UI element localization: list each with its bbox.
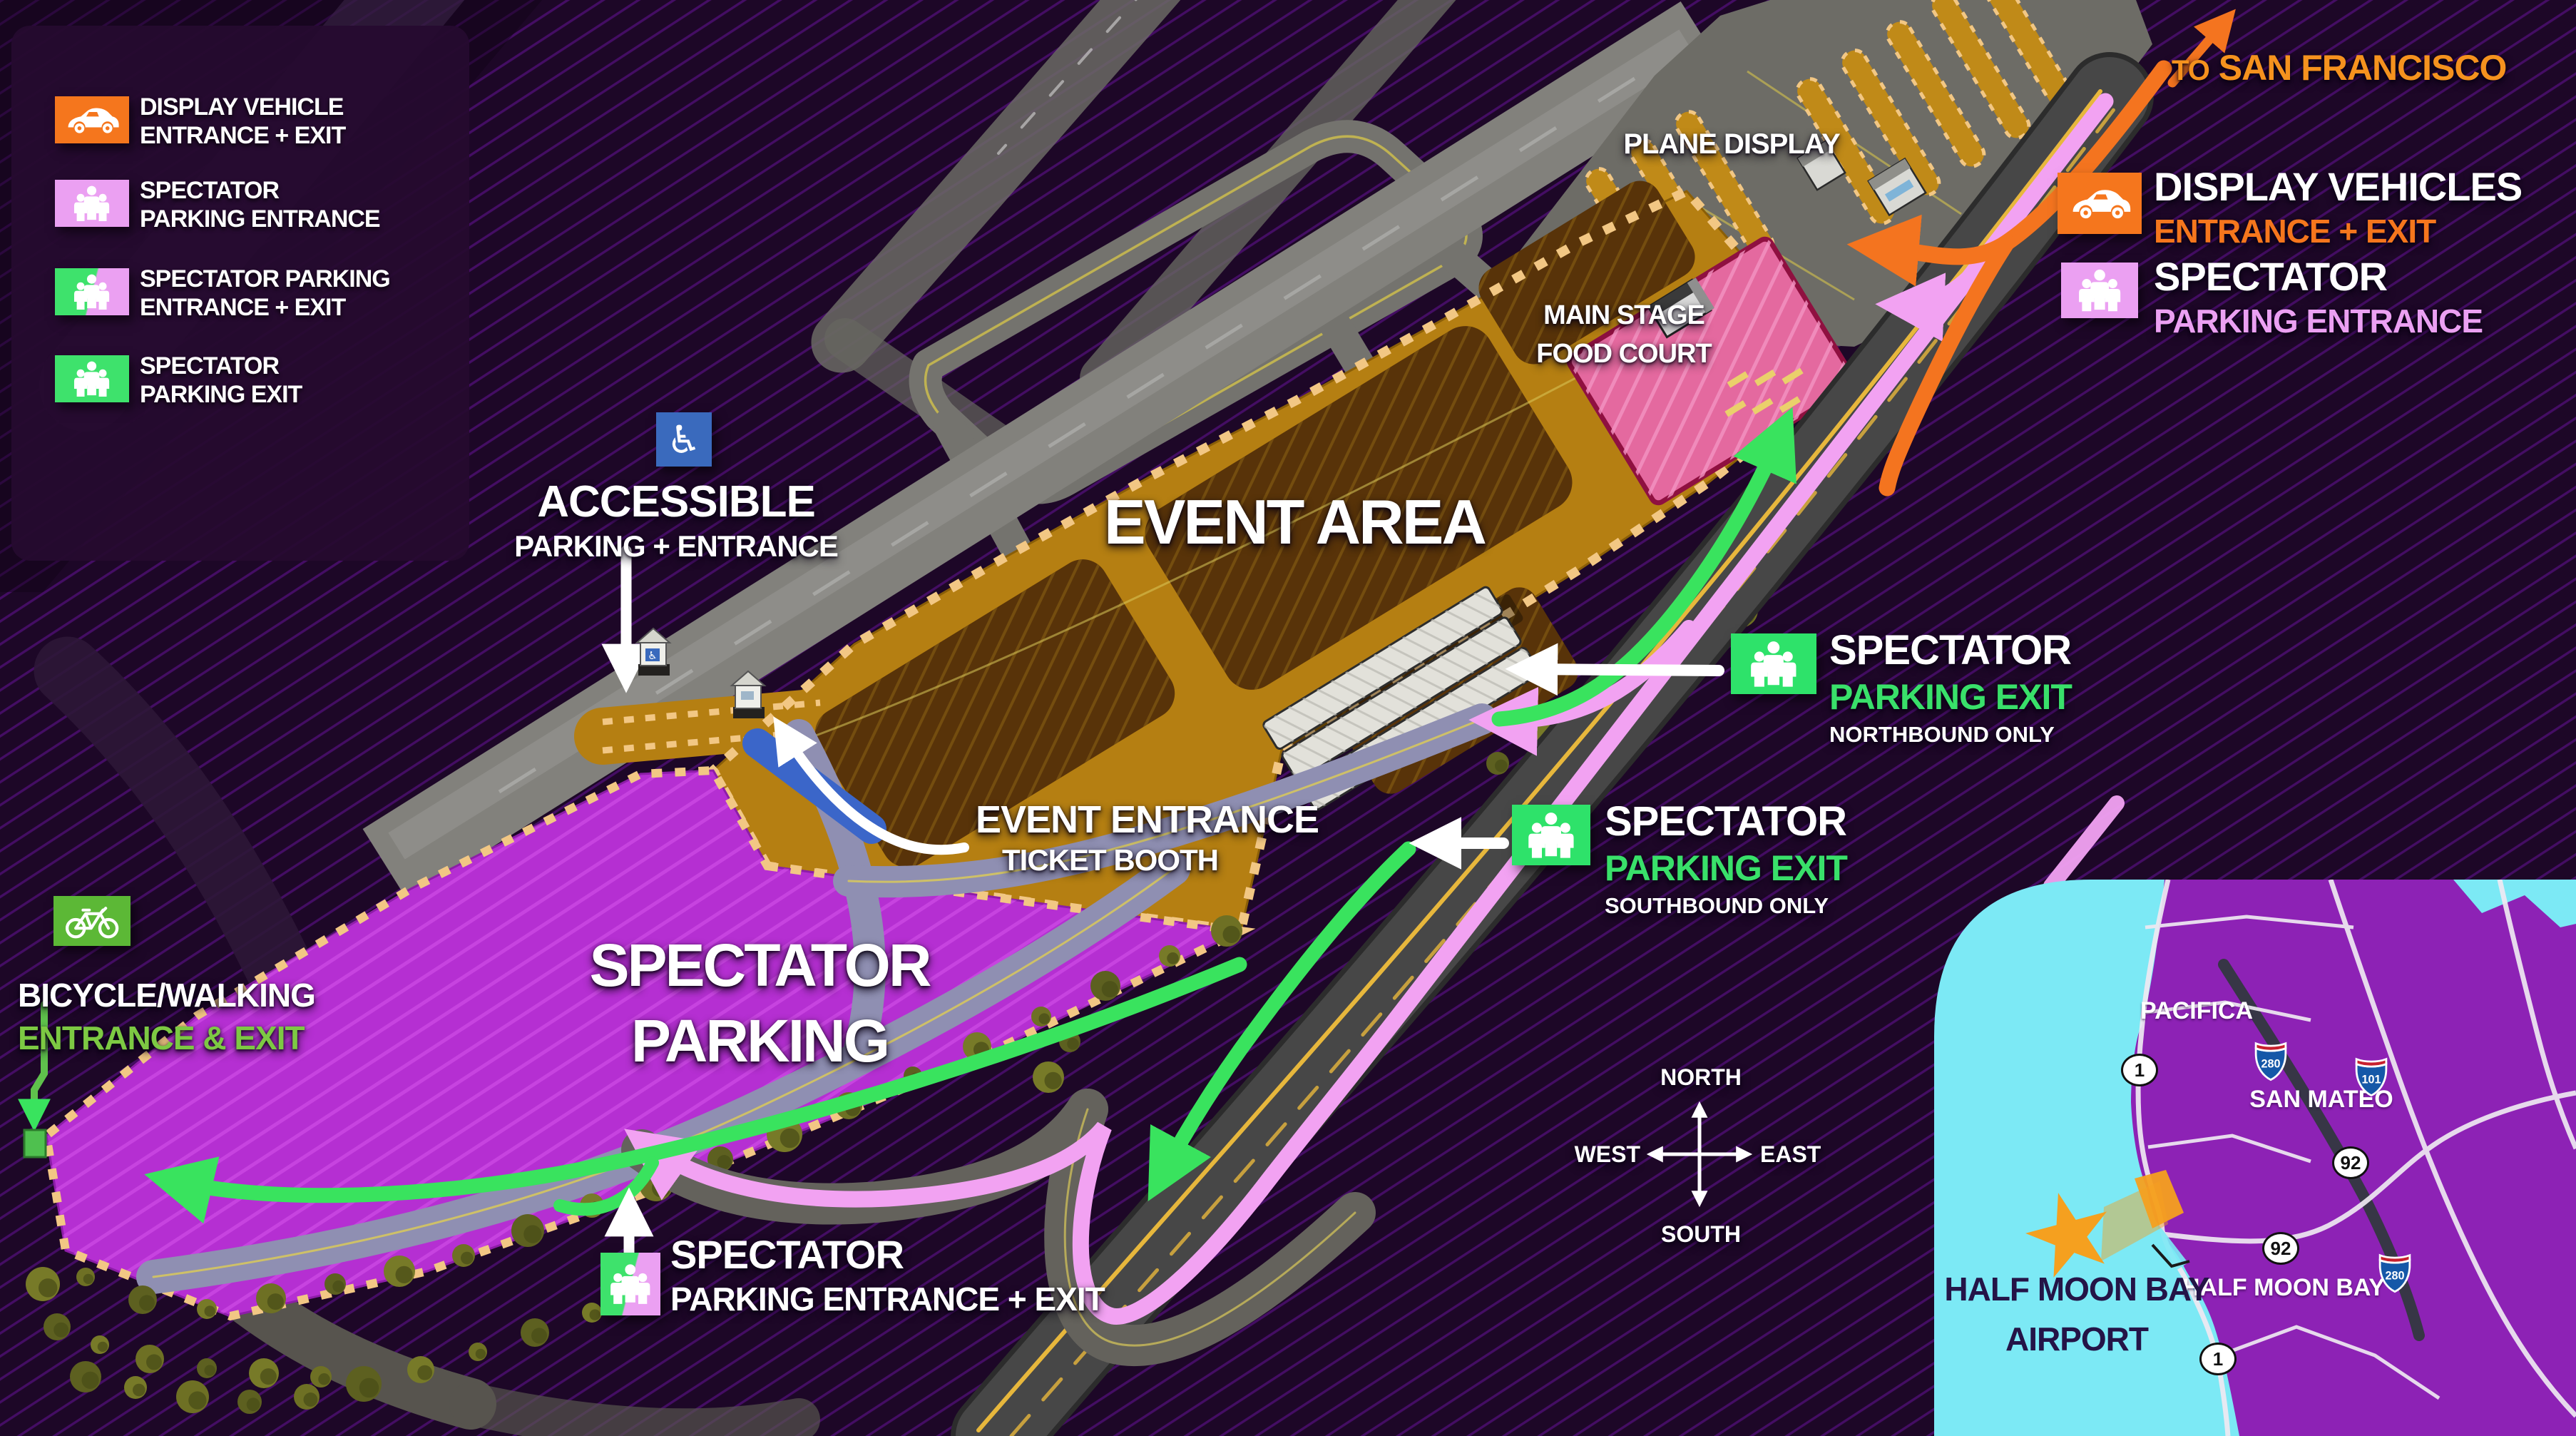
compass-south: SOUTH xyxy=(1661,1221,1741,1248)
legend-item-spectator-entrance: SPECTATOR PARKING ENTRANCE xyxy=(140,176,380,233)
tree-shade xyxy=(461,1252,474,1265)
legend-label: PARKING ENTRANCE xyxy=(140,205,380,233)
legend-label: SPECTATOR xyxy=(140,176,380,205)
spectator-bottom-sub: PARKING ENTRANCE + EXIT xyxy=(670,1280,1105,1318)
plane-display-label: PLANE DISPLAY xyxy=(1623,128,1839,161)
sf-name: SAN FRANCISCO xyxy=(2219,48,2507,88)
tree-shade xyxy=(523,1225,541,1243)
spectator-entrance-icon xyxy=(2061,263,2138,318)
main-stage-line1: MAIN STAGE xyxy=(1536,296,1711,335)
exit-north-sub: PARKING EXIT xyxy=(1829,676,2072,718)
tree-shade xyxy=(476,1349,486,1359)
car-icon xyxy=(2067,179,2132,228)
bicycle-title: BICYCLE/WALKING xyxy=(18,976,315,1014)
tree-shade xyxy=(780,1129,800,1149)
legend-label: ENTRANCE + EXIT xyxy=(140,121,345,150)
legend-entrance-exit-icon xyxy=(55,268,129,315)
spectator-parking-line2: PARKING xyxy=(589,1003,929,1079)
accessible-sub: PARKING + ENTRANCE xyxy=(514,529,838,564)
people-icon xyxy=(63,273,121,311)
inset-airport-line1: HALF MOON BAY xyxy=(1944,1264,2209,1314)
spectator-bottom-icon xyxy=(600,1253,660,1315)
display-vehicles-title: DISPLAY VEHICLES xyxy=(2154,166,2522,208)
car-icon xyxy=(63,101,121,139)
tree-shade xyxy=(53,1323,68,1338)
event-parking-map: ♿ DISPLAY V xyxy=(0,0,2576,1436)
tree-shade xyxy=(205,1365,215,1375)
legend-panel: DISPLAY VEHICLE ENTRANCE + EXIT SPECTATO… xyxy=(11,26,469,561)
people-icon xyxy=(1740,640,1807,688)
to-san-francisco-label: TO SAN FRANCISCO xyxy=(2172,47,2506,88)
spectator-entrance-title: SPECTATOR xyxy=(2154,255,2387,298)
legend-label: SPECTATOR xyxy=(140,352,302,380)
shield-i280-a: 280 xyxy=(2252,1040,2289,1081)
people-icon xyxy=(2070,268,2130,312)
inset-city-pacifica: PACIFICA xyxy=(2140,997,2253,1025)
legend-item-entrance-exit: SPECTATOR PARKING ENTRANCE + EXIT xyxy=(140,265,390,322)
bicycle-sub: ENTRANCE & EXIT xyxy=(18,1019,305,1057)
inset-airport-line2: AIRPORT xyxy=(1944,1314,2209,1364)
tree-shade xyxy=(1102,981,1118,997)
tree-shade xyxy=(247,1397,260,1411)
tree-shade xyxy=(83,1274,93,1284)
tree-shade xyxy=(133,1384,145,1397)
tree-shade xyxy=(332,1280,344,1293)
tree-shade xyxy=(139,1295,155,1310)
exit-south-note: SOUTHBOUND ONLY xyxy=(1605,893,1829,919)
exit-south-sub: PARKING EXIT xyxy=(1605,847,1847,889)
tree-shade xyxy=(717,1155,732,1169)
wheelchair-icon: ♿ xyxy=(667,417,701,462)
people-icon xyxy=(63,185,121,223)
exit-south-icon xyxy=(1512,805,1590,865)
spectator-bottom-title: SPECTATOR xyxy=(670,1231,904,1278)
display-vehicles-sub: ENTRANCE + EXIT xyxy=(2154,213,2436,250)
svg-text:280: 280 xyxy=(2385,1269,2404,1282)
svg-text:280: 280 xyxy=(2261,1057,2280,1070)
main-stage-line2: FOOD COURT xyxy=(1536,335,1711,373)
shield-i280-b: 280 xyxy=(2376,1252,2413,1293)
tree-shade xyxy=(359,1378,379,1398)
tree-shade xyxy=(1495,760,1508,773)
exit-north-icon xyxy=(1731,633,1816,694)
exit-north-title: SPECTATOR xyxy=(1829,626,2071,674)
people-icon xyxy=(63,360,121,398)
legend-label: SPECTATOR PARKING xyxy=(140,265,390,293)
shield-ca92-b: 92 xyxy=(2262,1232,2299,1265)
inset-city-half-moon-bay: HALF MOON BAY xyxy=(2182,1274,2385,1302)
event-entrance-sub: TICKET BOOTH xyxy=(1002,843,1218,877)
tree-shade xyxy=(82,1372,99,1389)
tree-shade xyxy=(188,1391,206,1409)
legend-item-spectator-exit: SPECTATOR PARKING EXIT xyxy=(140,352,302,409)
tree-shade xyxy=(1223,926,1240,943)
main-stage-label: MAIN STAGE FOOD COURT xyxy=(1536,296,1711,373)
tree-shade xyxy=(1045,1072,1062,1089)
compass-east: EAST xyxy=(1760,1141,1821,1168)
shield-ca1-a: 1 xyxy=(2121,1054,2158,1086)
compass-north: NORTH xyxy=(1660,1064,1742,1091)
bicycle-icon xyxy=(62,901,122,941)
tree-shade xyxy=(417,1365,432,1380)
accessible-title: ACCESSIBLE xyxy=(537,477,815,527)
event-entrance-title: EVENT ENTRANCE xyxy=(976,798,1319,842)
people-icon xyxy=(607,1259,654,1309)
spectator-entrance-sub: PARKING ENTRANCE xyxy=(2154,302,2483,340)
bicycle-gate-marker xyxy=(24,1130,46,1157)
bicycle-icon-box xyxy=(53,896,131,946)
tree-shade xyxy=(1167,952,1179,964)
legend-label: DISPLAY VEHICLE xyxy=(140,93,345,121)
svg-text:101: 101 xyxy=(2361,1073,2381,1086)
tree-shade xyxy=(304,1392,318,1407)
compass-west: WEST xyxy=(1575,1141,1640,1168)
tree-shade xyxy=(531,1328,547,1343)
legend-item-display-vehicle: DISPLAY VEHICLE ENTRANCE + EXIT xyxy=(140,93,345,150)
svg-text:♿: ♿ xyxy=(648,650,657,662)
tree-shade xyxy=(396,1266,413,1283)
exit-south-title: SPECTATOR xyxy=(1605,798,1846,845)
tree-shade xyxy=(146,1354,162,1370)
exit-north-note: NORTHBOUND ONLY xyxy=(1829,722,2055,748)
display-vehicles-icon xyxy=(2058,173,2142,234)
legend-spectator-exit-icon xyxy=(55,355,129,402)
to-prefix: TO xyxy=(2172,55,2209,86)
spectator-parking-label: SPECTATOR PARKING xyxy=(589,927,929,1079)
legend-label: PARKING EXIT xyxy=(140,380,302,409)
spectator-parking-line1: SPECTATOR xyxy=(589,927,929,1003)
tree-shade xyxy=(1039,1013,1050,1024)
accessible-icon: ♿ xyxy=(656,412,712,467)
tree-shade xyxy=(205,1305,215,1316)
tree-shade xyxy=(98,1342,108,1352)
tree-shade xyxy=(267,1293,284,1310)
legend-label: ENTRANCE + EXIT xyxy=(140,293,390,322)
event-area-label: EVENT AREA xyxy=(1104,485,1485,559)
tree-shade xyxy=(1067,1038,1079,1050)
legend-display-vehicle-icon xyxy=(55,96,129,143)
legend-spectator-entrance-icon xyxy=(55,180,129,227)
shield-ca1-b: 1 xyxy=(2199,1343,2237,1375)
tree-shade xyxy=(260,1368,277,1385)
tree-shade xyxy=(590,1309,600,1320)
shield-us101: 101 xyxy=(2353,1056,2390,1097)
tree-shade xyxy=(318,1373,330,1385)
tree-shade xyxy=(39,1278,57,1297)
people-icon xyxy=(1520,811,1582,860)
inset-airport-label: HALF MOON BAY AIRPORT xyxy=(1944,1264,2209,1364)
shield-ca92-a: 92 xyxy=(2332,1146,2369,1179)
